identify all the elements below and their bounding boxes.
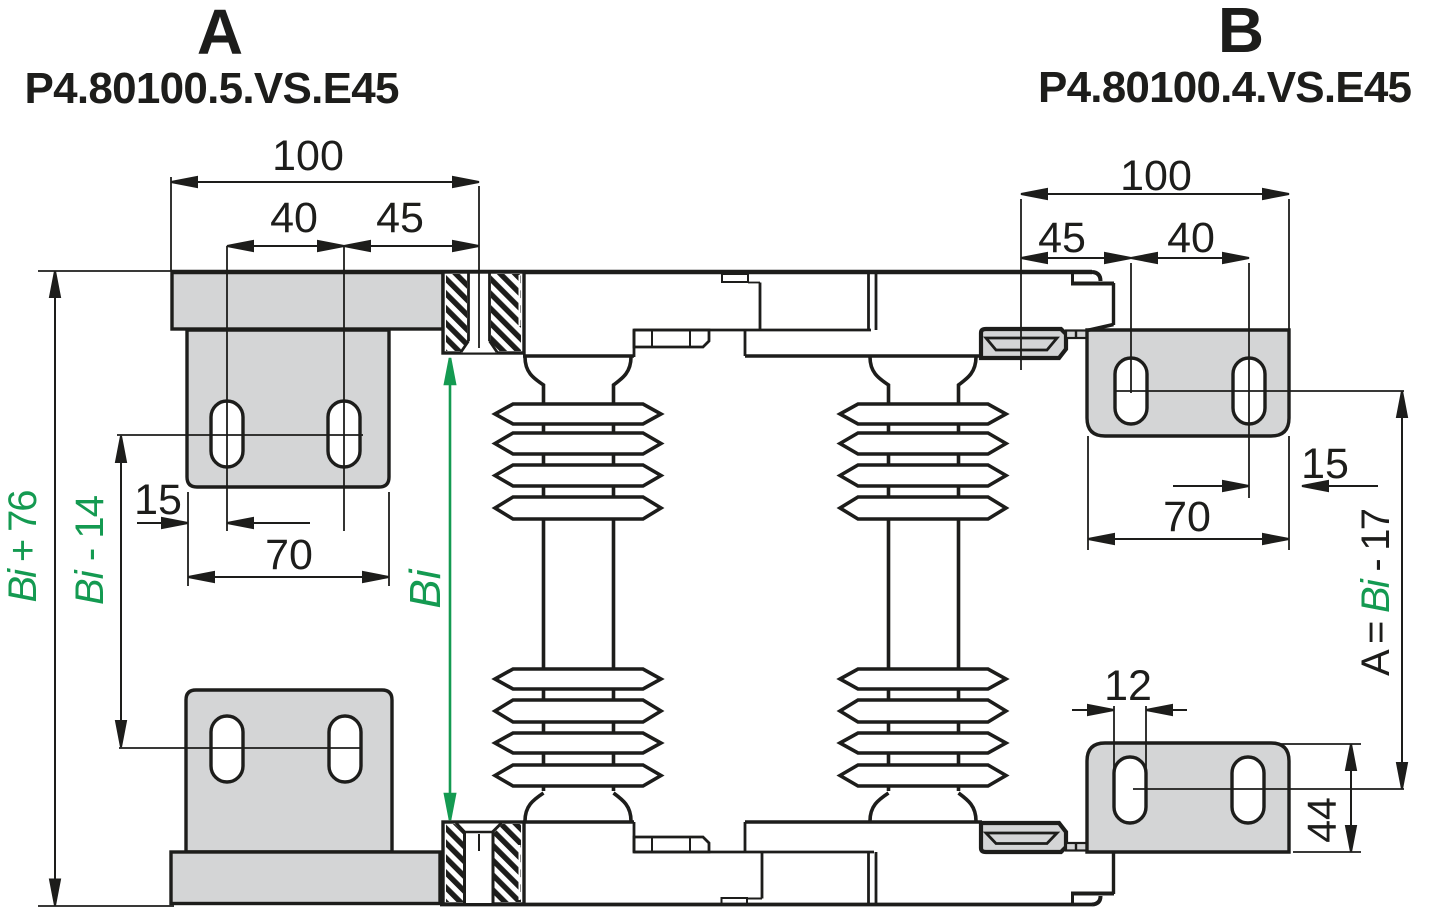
svg-text:100: 100 [272,132,344,180]
svg-text:100: 100 [1120,152,1192,200]
svg-text:A = Bi - 17: A = Bi - 17 [1354,508,1398,676]
svg-text:P4.80100.4.VS.E45: P4.80100.4.VS.E45 [1038,63,1412,112]
svg-text:15: 15 [134,476,182,524]
svg-text:45: 45 [1038,214,1086,262]
svg-text:44: 44 [1299,797,1345,843]
svg-text:45: 45 [376,194,424,242]
svg-text:40: 40 [270,194,318,242]
svg-text:70: 70 [265,531,313,579]
svg-text:70: 70 [1163,493,1211,541]
svg-text:Bi: Bi [401,568,450,608]
svg-text:B: B [1218,0,1264,66]
svg-text:40: 40 [1167,214,1215,262]
svg-text:Bi - 14: Bi - 14 [68,495,112,605]
svg-text:P4.80100.5.VS.E45: P4.80100.5.VS.E45 [25,64,400,113]
svg-text:Bi + 76: Bi + 76 [1,490,45,603]
svg-text:15: 15 [1301,440,1349,488]
svg-text:A: A [197,0,243,68]
svg-text:12: 12 [1104,662,1152,710]
